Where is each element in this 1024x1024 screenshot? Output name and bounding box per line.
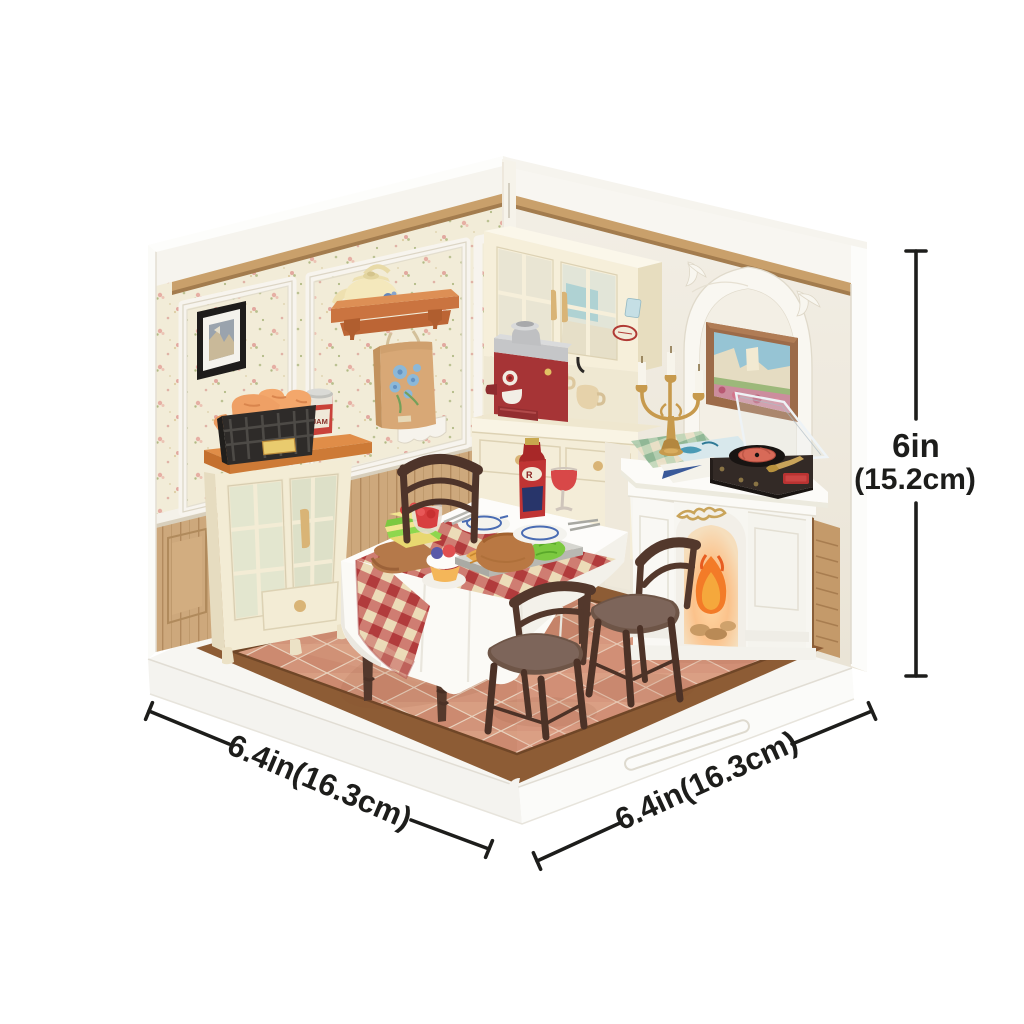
svg-text:(15.2cm): (15.2cm) [854, 463, 976, 496]
svg-text:6in: 6in [892, 427, 940, 464]
svg-text:R: R [526, 470, 533, 480]
